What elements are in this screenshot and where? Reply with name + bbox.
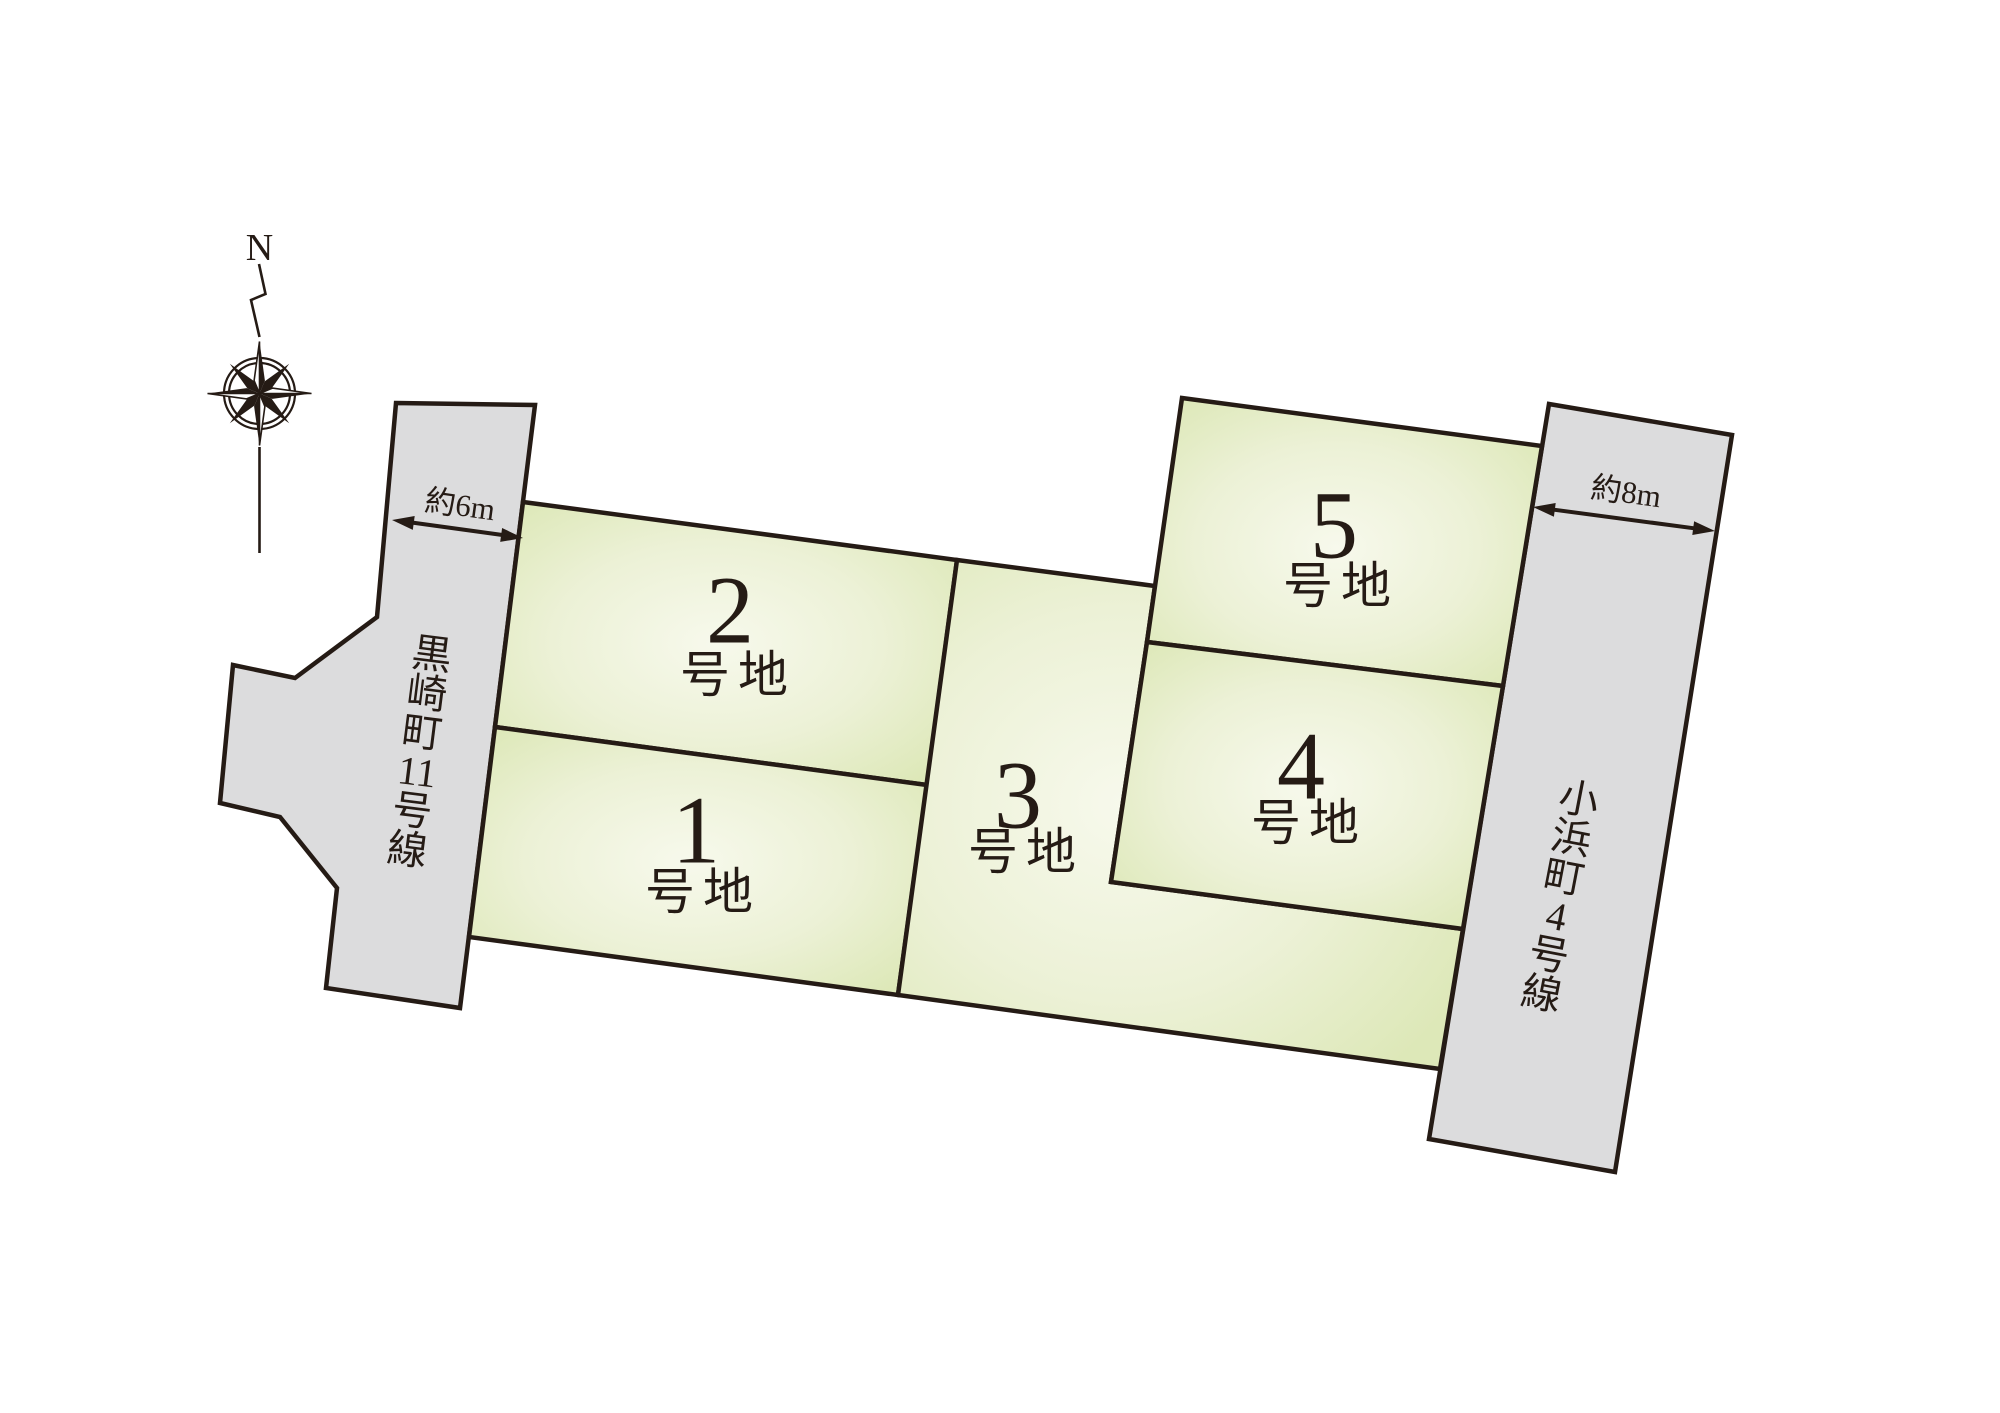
lot-1-suffix: 号地 (645, 864, 761, 920)
lot-map-page: 1 号地 2 号地 3 号地 4 号地 5 号地 黒崎町11号線 小浜町4号線 … (0, 0, 2000, 1413)
lots-layer (469, 398, 1542, 1069)
lot-3-suffix: 号地 (968, 824, 1084, 880)
compass-north-label: N (246, 227, 273, 269)
lot-2-suffix: 号地 (680, 647, 796, 703)
subdivision-map: 1 号地 2 号地 3 号地 4 号地 5 号地 黒崎町11号線 小浜町4号線 … (0, 0, 2000, 1413)
lot-5-suffix: 号地 (1283, 558, 1399, 614)
compass-zigzag (251, 264, 266, 337)
lot-4-suffix: 号地 (1251, 795, 1367, 851)
compass-rose: N (208, 227, 312, 553)
